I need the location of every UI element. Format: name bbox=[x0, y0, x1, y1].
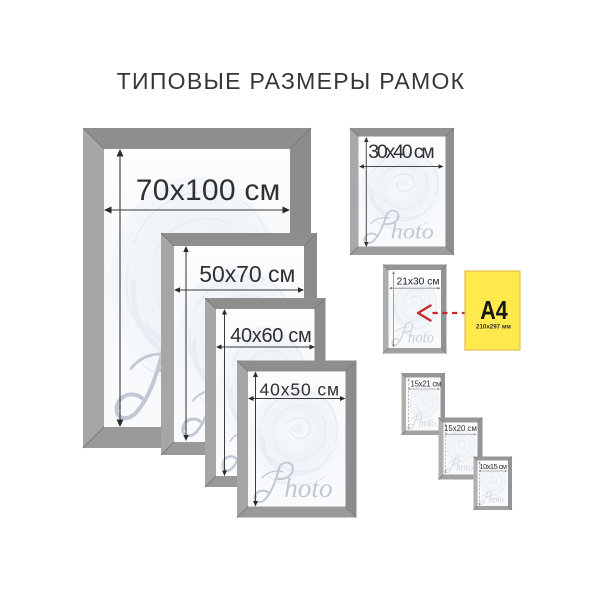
svg-text:A4: A4 bbox=[480, 297, 508, 325]
svg-text:15х21 см: 15х21 см bbox=[411, 379, 442, 388]
svg-text:50х70 см: 50х70 см bbox=[199, 261, 296, 287]
svg-text:40х60 см: 40х60 см bbox=[230, 325, 312, 347]
svg-text:15х20 см: 15х20 см bbox=[444, 424, 477, 433]
svg-text:10х15 см: 10х15 см bbox=[480, 462, 508, 471]
svg-text:70х100 см: 70х100 см bbox=[136, 174, 281, 207]
svg-text:210х297 мм: 210х297 мм bbox=[476, 324, 511, 331]
svg-text:30х40 см: 30х40 см bbox=[368, 141, 435, 163]
svg-text:21х30 см: 21х30 см bbox=[397, 277, 440, 288]
svg-text:40х50 см: 40х50 см bbox=[260, 380, 340, 400]
svg-text:ТИПОВЫЕ РАЗМЕРЫ РАМОК: ТИПОВЫЕ РАЗМЕРЫ РАМОК bbox=[117, 68, 466, 94]
